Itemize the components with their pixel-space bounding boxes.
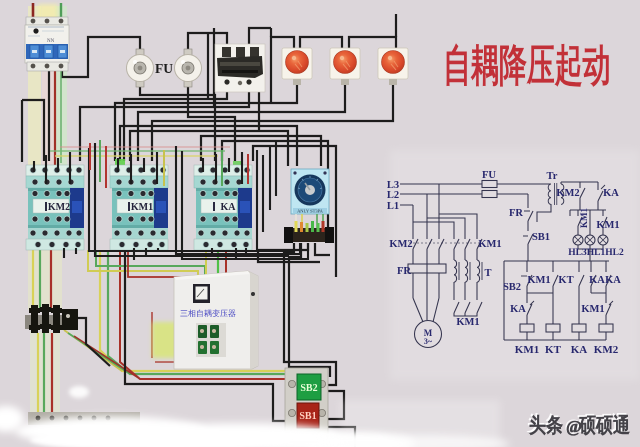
svg-text:FU: FU: [482, 170, 496, 181]
svg-text:T: T: [484, 268, 491, 279]
svg-text:Tr: Tr: [547, 171, 558, 182]
svg-text:FU: FU: [155, 61, 173, 76]
svg-text:SB1: SB1: [299, 411, 316, 422]
svg-text:KA: KA: [221, 202, 237, 213]
svg-text:KM2: KM2: [48, 202, 70, 213]
svg-text:L1: L1: [387, 201, 399, 212]
svg-text:KA: KA: [589, 275, 605, 286]
svg-text:KT: KT: [545, 344, 562, 356]
svg-text:@: @: [566, 417, 582, 436]
svg-text:KM1: KM1: [579, 208, 589, 228]
svg-text:SB2: SB2: [300, 383, 317, 394]
svg-text:KM1: KM1: [456, 317, 479, 328]
svg-text:3~: 3~: [424, 337, 433, 346]
svg-text:KA: KA: [510, 304, 526, 315]
svg-text:KM1: KM1: [596, 220, 619, 231]
svg-text:NN: NN: [47, 39, 55, 44]
svg-text:KM1: KM1: [478, 239, 501, 250]
svg-text:KM2: KM2: [389, 239, 412, 250]
svg-text:KM1: KM1: [581, 304, 604, 315]
svg-text:KA: KA: [603, 188, 619, 199]
svg-text:ANLY ST3PA: ANLY ST3PA: [297, 209, 324, 214]
svg-text:KM1: KM1: [515, 344, 539, 356]
svg-text:SB1: SB1: [532, 232, 550, 243]
svg-text:L2: L2: [387, 190, 399, 201]
svg-text:KT: KT: [558, 275, 573, 286]
svg-text:KA: KA: [605, 275, 621, 286]
svg-text:KM2: KM2: [594, 344, 619, 356]
svg-text:KM2: KM2: [556, 188, 579, 199]
svg-text:KM1: KM1: [527, 275, 550, 286]
svg-text:FR: FR: [509, 208, 523, 219]
svg-text:HL3HL1HL2: HL3HL1HL2: [568, 248, 624, 258]
svg-text:SB2: SB2: [503, 282, 521, 293]
svg-text:KM1: KM1: [131, 202, 153, 213]
svg-text:FR: FR: [397, 266, 411, 277]
svg-text:KA: KA: [571, 344, 588, 356]
